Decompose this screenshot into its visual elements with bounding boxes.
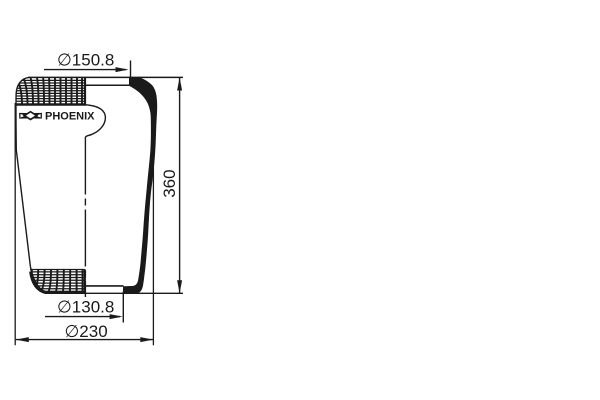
svg-text:PHOENIX: PHOENIX [45, 110, 95, 122]
svg-text:360: 360 [160, 169, 179, 197]
svg-text:∅150.8: ∅150.8 [57, 50, 114, 69]
svg-text:∅130.8: ∅130.8 [57, 297, 114, 316]
svg-text:∅230: ∅230 [65, 322, 108, 341]
